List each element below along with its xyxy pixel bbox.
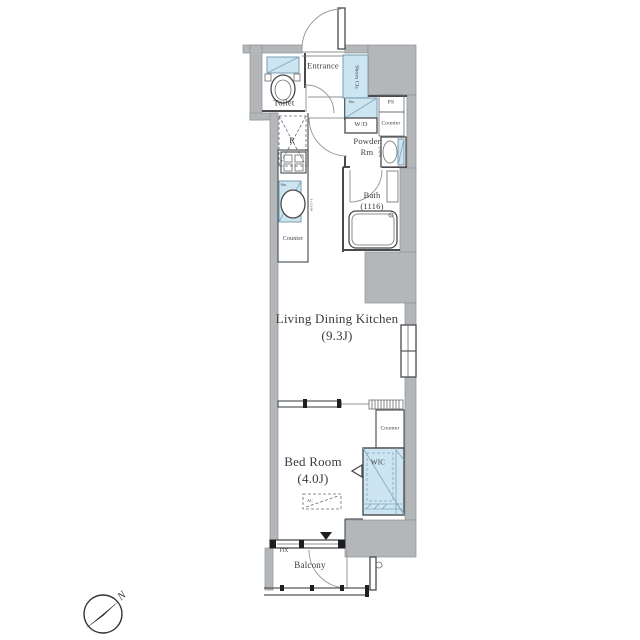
toilet-fixture	[265, 57, 300, 103]
right-window	[401, 325, 416, 377]
label-air-conditioner: AC	[307, 498, 313, 503]
label-toilet: Toilet	[274, 97, 295, 108]
entrance-door	[302, 8, 345, 56]
bottom-windows	[270, 532, 345, 548]
label-wic: WIC	[371, 458, 385, 467]
label-bedroom-counter: Counter	[380, 425, 399, 432]
wic-door-chevron	[352, 465, 362, 477]
label-powder-counter: Counter	[381, 120, 400, 127]
partition-sliding-door	[278, 399, 403, 409]
kitchen-unit	[278, 150, 308, 262]
label-bedroom: Bed Room (4.0J)	[284, 454, 342, 488]
compass-circle	[84, 595, 122, 633]
label-refrigerator: R	[289, 136, 295, 146]
label-fix-window: FIX	[280, 549, 289, 556]
drain-circle	[376, 562, 382, 568]
label-storage-powder: Sto.	[349, 99, 356, 104]
label-washer-dryer: W/D	[354, 121, 367, 129]
door-marker-triangle	[320, 532, 332, 540]
label-kitchen-length: L=2,100	[308, 199, 313, 212]
label-balcony: Balcony	[294, 560, 325, 572]
floorplan-canvas: Toilet Entrance Shoes Cls Sto. W/D PS Co…	[0, 0, 640, 640]
label-bath: Bath (1116)	[360, 190, 383, 212]
label-shoes-closet: Shoes Cls	[352, 65, 359, 89]
label-storage-kitchen: Sto.	[281, 182, 288, 187]
label-vanity-length: L=670	[376, 147, 381, 157]
label-kitchen-counter: Counter	[283, 236, 304, 244]
compass	[84, 595, 122, 633]
label-pipe-space: PS	[388, 99, 395, 106]
label-living-dining-kitchen: Living Dining Kitchen (9.3J)	[276, 311, 399, 345]
label-entrance: Entrance	[307, 60, 339, 71]
